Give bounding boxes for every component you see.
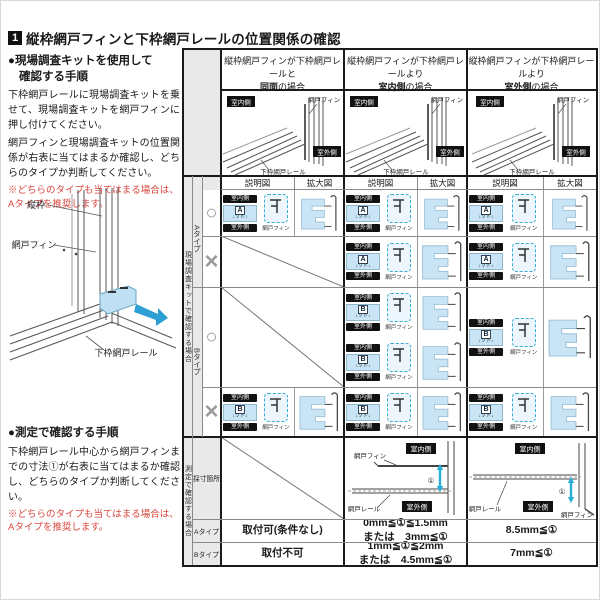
diagram-cell: 室内側 B ↓ソト↓ 室外側 網戸フィン xyxy=(344,387,467,437)
setsumeizu-cell: 室内側 A ↓ソト↓ 室外側 網戸フィン xyxy=(467,190,544,236)
divider xyxy=(192,542,596,543)
outdoor-side-label: 室外側 xyxy=(223,423,257,431)
value-line: 7mm≦① xyxy=(510,547,553,561)
indoor-side-label: 室内側 xyxy=(469,195,503,203)
fin-glyph xyxy=(267,196,285,216)
fin-glyph xyxy=(390,196,408,216)
indoor-side-label: 室内側 xyxy=(480,98,500,107)
rail-label: 網戸レール xyxy=(348,504,381,513)
subheader-setsumeizu: 説明図 xyxy=(467,176,544,190)
fin-label: 網戸フィン xyxy=(308,95,340,104)
measure-heading: ●測定で確認する手順 xyxy=(8,426,180,442)
fin-highlight-box xyxy=(512,194,536,223)
diagram-cell: 室内側 A ↓ソト↓ 室外側 網戸フィン xyxy=(344,236,467,287)
measure-note: ※どちらのタイプも当てはまる場合は、Aタイプを推奨します。 xyxy=(8,508,180,536)
kit-ticks: ↓ソト↓ xyxy=(478,339,493,344)
measure-row-label: 採寸箇所 xyxy=(192,437,221,519)
dimension-1-label: ① xyxy=(559,487,566,496)
kit-ticks: ↓ソト↓ xyxy=(478,215,493,220)
fin-label: 網戸フィン xyxy=(561,510,593,519)
diagram-pair: 室内側 B ↓ソト↓ 室外側 網戸フィン xyxy=(467,387,596,437)
outdoor-side-label: 室外側 xyxy=(317,148,337,157)
divider xyxy=(192,519,596,520)
divider xyxy=(202,236,596,237)
enlarged-kit-shape xyxy=(547,389,593,435)
fin-label: 網戸フィン xyxy=(262,423,289,431)
fin-highlight-box xyxy=(387,343,411,372)
outdoor-side-label: 室外側 xyxy=(346,323,380,331)
divider xyxy=(192,176,193,565)
value-b-indoor: 1mm≦①≦2mm または 4.5mm≦① xyxy=(344,542,467,565)
col-header-text: 縦枠網戸フィンが下枠網戸レールより xyxy=(469,56,595,79)
fin-label: 網戸フィン xyxy=(510,273,537,281)
fin-label: 網戸フィン xyxy=(385,273,412,281)
measure-section: ●測定で確認する手順 下枠網戸レール中心から網戸フィンまでの寸法①が右表に当ては… xyxy=(8,426,180,545)
indoor-side-label: 室内側 xyxy=(411,445,432,454)
survey-kit-bar: B ↓ソト↓ xyxy=(346,404,380,421)
fin-label: 網戸フィン xyxy=(385,373,412,381)
outdoor-side-label: 室外側 xyxy=(469,423,503,431)
value-a-indoor: 0mm≦①≦1.5mm または 3mm≦① xyxy=(344,519,467,542)
outdoor-side-label: 室外側 xyxy=(440,148,460,157)
diagram-cell: 室内側 B ↓ソト↓ 室外側 網戸フィン xyxy=(467,387,596,437)
col-header-indoor: 縦枠網戸フィンが下枠網戸レールより 室内側の場合 xyxy=(344,50,467,90)
survey-kit-bar: B ↓ソト↓ xyxy=(469,329,503,346)
indoor-side-label: 室内側 xyxy=(346,294,380,302)
value-line: または 4.5mm≦① xyxy=(359,554,452,568)
enlarged-kit-shape xyxy=(420,339,464,385)
survey-kit-bar: B ↓ソト↓ xyxy=(469,404,503,421)
fin-label: 網戸フィン xyxy=(510,224,537,232)
survey-kit-shape xyxy=(100,286,136,314)
corner-cell xyxy=(184,50,221,176)
divider xyxy=(221,189,596,190)
divider xyxy=(192,287,596,288)
outdoor-side-label: 室外側 xyxy=(566,148,586,157)
survey-kit-bar: B ↓ソト↓ xyxy=(346,304,380,321)
col-header-text: 縦枠網戸フィンが下枠網戸レールより xyxy=(347,56,464,79)
measure-diagram-na xyxy=(221,437,344,519)
diagram-cell: 室内側 B ↓ソト↓ 室外側 網戸フィン xyxy=(467,287,596,387)
diagram-pair: 室内側 A ↓ソト↓ 室外側 網戸フィン xyxy=(221,190,344,236)
kakudaizu-cell xyxy=(418,387,467,437)
diagram-cell: 室内側 B ↓ソト↓ 室外側 網戸フィン xyxy=(221,387,344,437)
indoor-side-label: 室内側 xyxy=(346,344,380,352)
enlarged-kit-shape xyxy=(547,238,593,285)
rail-label: 網戸レール xyxy=(469,504,502,513)
setsumeizu-cell: 室内側 A ↓ソト↓ 室外側 網戸フィン xyxy=(344,236,418,287)
value-a-same-plane: 取付可(条件なし) xyxy=(221,519,344,542)
overview-diagram-indoor: 室内側 網戸フィン 室外側 下枠網戸レール xyxy=(344,90,467,176)
kit-ticks: ↓ソト↓ xyxy=(232,414,247,419)
indoor-side-label: 室内側 xyxy=(469,319,503,327)
fin-glyph xyxy=(390,395,408,415)
subheader-kakudaizu: 拡大図 xyxy=(418,176,467,190)
setsumeizu-cell: 室内側 B ↓ソト↓ 室外側 網戸フィン xyxy=(467,287,544,387)
fin-glyph xyxy=(390,295,408,315)
diagram-cell: 室内側 A ↓ソト↓ 室外側 網戸フィン xyxy=(467,190,596,236)
overview-diagram-outdoor: 室内側 網戸フィン 室外側 下枠網戸レール xyxy=(467,90,596,176)
indoor-side-label: 室内側 xyxy=(223,195,257,203)
not-applicable-cell xyxy=(221,287,344,387)
kakudaizu-cell xyxy=(544,190,596,236)
fin-highlight-box xyxy=(264,194,288,223)
col-header-text: 縦枠網戸フィンが下枠網戸レールと xyxy=(224,56,341,79)
kit-procedure-heading-line2: 確認する手順 xyxy=(8,70,180,86)
subheader-kakudaizu: 拡大図 xyxy=(295,176,344,190)
enlarged-kit-shape xyxy=(420,389,464,435)
enlarged-kit-shape xyxy=(297,192,341,234)
indoor-side-label: 室内側 xyxy=(346,243,380,251)
value-b-same-plane: 取付不可 xyxy=(221,542,344,565)
divider xyxy=(466,50,468,565)
setsumeizu-cell: 室内側 B ↓ソト↓ 室外側 網戸フィン xyxy=(344,387,418,437)
indoor-side-label: 室内側 xyxy=(354,98,374,107)
col-header-outdoor: 縦枠網戸フィンが下枠網戸レールより 室外側の場合 xyxy=(467,50,596,90)
value-b-outdoor: 7mm≦① xyxy=(467,542,596,565)
fin-highlight-box xyxy=(387,194,411,223)
outdoor-side-label: 室外側 xyxy=(407,503,428,512)
diagram-pair: 室内側 B ↓ソト↓ 室外側 網戸フィン xyxy=(467,287,596,387)
indoor-side-label: 室内側 xyxy=(469,243,503,251)
kakudaizu-cell xyxy=(418,190,467,236)
diagram-cell: 室内側 A ↓ソト↓ 室外側 網戸フィン xyxy=(221,190,344,236)
kakudaizu-cell xyxy=(295,387,344,437)
kit-procedure-para1: 下枠網戸レールに現場調査キットを乗せて、現場調査キットを網戸フィンに押し付けてく… xyxy=(8,88,180,133)
not-applicable-cell xyxy=(221,236,344,287)
outdoor-side-label: 室外側 xyxy=(346,373,380,381)
section-header: 1 縦枠網戸フィンと下枠網戸レールの位置関係の確認 xyxy=(8,28,341,48)
enlarged-kit-shape xyxy=(420,238,464,285)
indoor-side-label: 室内側 xyxy=(231,98,251,107)
kit-procedure-heading-line1: ●現場調査キットを使用して xyxy=(8,54,180,70)
diagram-pair: 室内側 A ↓ソト↓ 室外側 網戸フィン xyxy=(344,190,467,236)
divider xyxy=(220,50,222,565)
outdoor-side-label: 室外側 xyxy=(223,224,257,232)
fin-glyph xyxy=(267,395,285,415)
fin-label: 網戸フィン xyxy=(385,224,412,232)
measure-type-b-label: Bタイプ xyxy=(192,542,221,565)
fin-highlight-box xyxy=(264,393,288,422)
fin-label: 網戸フィン xyxy=(510,348,537,356)
kit-ticks: ↓ソト↓ xyxy=(232,215,247,220)
subheader-kakudaizu: 拡大図 xyxy=(544,176,596,190)
kit-check-group-label: 現場調査キットで確認する場合 xyxy=(184,176,192,437)
value-line: 取付不可 xyxy=(262,547,304,561)
setsumeizu-cell: 室内側 B ↓ソト↓ 室外側 網戸フィン xyxy=(221,387,295,437)
fin-label: 網戸フィン xyxy=(354,451,386,460)
survey-kit-bar: B ↓ソト↓ xyxy=(223,404,257,421)
indoor-side-label: 室内側 xyxy=(346,195,380,203)
kit-ticks: ↓ソト↓ xyxy=(355,215,370,220)
diagram-pair: 室内側 A ↓ソト↓ 室外側 網戸フィン xyxy=(467,236,596,287)
corner-overview-svg: 室内側 網戸フィン 室外側 下枠網戸レール xyxy=(467,90,596,176)
corner-overview-svg: 室内側 網戸フィン 室外側 下枠網戸レール xyxy=(344,90,467,176)
enlarged-kit-shape xyxy=(547,192,593,234)
setsumeizu-cell: 室内側 B ↓ソト↓ 室外側 網戸フィン xyxy=(344,287,418,337)
survey-kit-bar: A ↓ソト↓ xyxy=(346,205,380,222)
divider xyxy=(202,387,596,388)
fin-label: 網戸フィン xyxy=(385,423,412,431)
kit-procedure-para2: 網戸フィンと現場調査キットの位置関係が右表に当てはまるか確認し、どちらのタイプか… xyxy=(8,136,180,181)
window-frame-diagram: 縦枠 網戸フィン 下枠網戸レール xyxy=(8,186,180,368)
kakudaizu-cell xyxy=(544,287,596,387)
fin-glyph xyxy=(515,395,533,415)
push-direction-arrow xyxy=(134,304,168,326)
kakudaizu-cell xyxy=(544,387,596,437)
fin-label: 網戸フィン xyxy=(431,95,463,104)
measure-diagram-indoor: 室内側 室外側 網戸フィン 網戸レール ① xyxy=(344,437,467,519)
fin-glyph xyxy=(390,345,408,365)
subheader-setsumeizu: 説明図 xyxy=(221,176,295,190)
kit-ticks: ↓ソト↓ xyxy=(355,314,370,319)
corner-overview-svg: 室内側 網戸フィン 室外側 下枠網戸レール xyxy=(221,90,344,176)
fin-highlight-box xyxy=(387,243,411,272)
type-b-label: Bタイプ xyxy=(192,287,202,437)
kakudaizu-cell xyxy=(295,190,344,236)
fin-glyph xyxy=(515,196,533,216)
enlarged-kit-shape xyxy=(547,291,593,383)
diagram-pair: 室内側 A ↓ソト↓ 室外側 網戸フィン xyxy=(344,236,467,287)
survey-kit-bar: A ↓ソト↓ xyxy=(223,205,257,222)
match-mark-a-ng: × xyxy=(202,236,221,287)
outdoor-side-label: 室外側 xyxy=(528,503,549,512)
fin-label: 網戸フィン xyxy=(385,323,412,331)
fin-glyph xyxy=(390,245,408,265)
measure-type-a-label: Aタイプ xyxy=(192,519,221,542)
fin-glyph xyxy=(515,245,533,265)
match-mark-a-ok: ○ xyxy=(202,190,221,236)
overview-diagram-same-plane: 室内側 網戸フィン 室外側 下枠網戸レール xyxy=(221,90,344,176)
setsumeizu-cell: 室内側 A ↓ソト↓ 室外側 網戸フィン xyxy=(467,236,544,287)
left-instructions-panel: ●現場調査キットを使用して 確認する手順 下枠網戸レールに現場調査キットを乗せて… xyxy=(8,54,180,221)
setsumeizu-cell: 室内側 A ↓ソト↓ 室外側 網戸フィン xyxy=(344,190,418,236)
subheader-setsumeizu: 説明図 xyxy=(344,176,418,190)
outdoor-side-label: 室外側 xyxy=(469,224,503,232)
indoor-side-label: 室内側 xyxy=(520,445,541,454)
fin-highlight-box xyxy=(387,393,411,422)
fin-highlight-box xyxy=(512,243,536,272)
kit-ticks: ↓ソト↓ xyxy=(355,364,370,369)
setsumeizu-cell: 室内側 A ↓ソト↓ 室外側 網戸フィン xyxy=(221,190,295,236)
enlarged-kit-shape xyxy=(420,289,464,335)
divider xyxy=(220,89,596,91)
divider xyxy=(343,50,345,565)
kakudaizu-cell xyxy=(544,236,596,287)
enlarged-kit-shape xyxy=(420,192,464,234)
outdoor-side-label: 室外側 xyxy=(346,423,380,431)
fin-highlight-box xyxy=(512,393,536,422)
fin-highlight-box xyxy=(512,318,536,347)
indoor-side-label: 室内側 xyxy=(223,394,257,402)
survey-kit-bar: A ↓ソト↓ xyxy=(346,253,380,270)
enlarged-kit-shape xyxy=(297,389,341,435)
survey-kit-bar: A ↓ソト↓ xyxy=(469,205,503,222)
diagram-pair: 室内側 B ↓ソト↓ 室外側 網戸フィン xyxy=(221,387,344,437)
fin-label: 網戸フィン xyxy=(510,423,537,431)
position-check-table: 縦枠網戸フィンが下枠網戸レールと 同面の場合 縦枠網戸フィンが下枠網戸レールより… xyxy=(182,48,598,567)
outdoor-side-label: 室外側 xyxy=(346,224,380,232)
divider xyxy=(184,436,596,438)
diagram-pair: 室内側 B ↓ソト↓ 室外側 網戸フィン xyxy=(344,387,467,437)
outdoor-side-label: 室外側 xyxy=(469,272,503,280)
measure-group-label: 測定で確認する場合 xyxy=(184,437,192,565)
match-mark-b-ng: × xyxy=(202,387,221,437)
kakudaizu-cell xyxy=(418,236,467,287)
document-page: 1 縦枠網戸フィンと下枠網戸レールの位置関係の確認 ●現場調査キットを使用して … xyxy=(0,0,600,600)
diagram-cell: 室内側 A ↓ソト↓ 室外側 網戸フィン xyxy=(467,236,596,287)
diagram-pair: 室内側 B ↓ソト↓ 室外側 網戸フィン xyxy=(344,337,467,387)
divider xyxy=(184,175,596,177)
survey-kit-bar: B ↓ソト↓ xyxy=(346,354,380,371)
kit-ticks: ↓ソト↓ xyxy=(355,264,370,269)
label-filler xyxy=(192,176,221,190)
fin-glyph xyxy=(515,320,533,340)
measure-para: 下枠網戸レール中心から網戸フィンまでの寸法①が右表に当てはまるか確認し、どちらの… xyxy=(8,445,180,505)
setsumeizu-cell: 室内側 B ↓ソト↓ 室外側 網戸フィン xyxy=(344,337,418,387)
diagram-pair: 室内側 B ↓ソト↓ 室外側 網戸フィン xyxy=(344,287,467,337)
tatewaku-label: 縦枠 xyxy=(27,199,45,210)
section-number-badge: 1 xyxy=(8,31,22,45)
kit-ticks: ↓ソト↓ xyxy=(478,264,493,269)
measure-diagram-outdoor: 室内側 室外側 網戸レール 網戸フィン ① xyxy=(467,437,596,519)
fin-label: 網戸フィン xyxy=(12,239,57,250)
rail-label: 下枠網戸レール xyxy=(94,347,157,358)
outdoor-side-label: 室外側 xyxy=(346,272,380,280)
kit-ticks: ↓ソト↓ xyxy=(355,414,370,419)
value-line: 取付可(条件なし) xyxy=(242,524,323,538)
kakudaizu-cell xyxy=(418,337,467,387)
value-line: 8.5mm≦① xyxy=(506,524,557,538)
diagram-pair: 室内側 A ↓ソト↓ 室外側 網戸フィン xyxy=(467,190,596,236)
diagram-cell: 室内側 A ↓ソト↓ 室外側 網戸フィン xyxy=(344,190,467,236)
indoor-side-label: 室内側 xyxy=(469,394,503,402)
outdoor-side-label: 室外側 xyxy=(469,348,503,356)
page-title: 縦枠網戸フィンと下枠網戸レールの位置関係の確認 xyxy=(26,28,341,48)
dimension-1-label: ① xyxy=(428,476,435,485)
setsumeizu-cell: 室内側 B ↓ソト↓ 室外側 網戸フィン xyxy=(467,387,544,437)
indoor-side-label: 室内側 xyxy=(346,394,380,402)
diagram-cell-double: 室内側 B ↓ソト↓ 室外側 網戸フィン 室内側 B ↓ソ xyxy=(344,287,467,387)
value-a-outdoor: 8.5mm≦① xyxy=(467,519,596,542)
col-header-same-plane: 縦枠網戸フィンが下枠網戸レールと 同面の場合 xyxy=(221,50,344,90)
fin-highlight-box xyxy=(387,293,411,322)
kakudaizu-cell xyxy=(418,287,467,337)
kit-ticks: ↓ソト↓ xyxy=(478,414,493,419)
type-a-label: Aタイプ xyxy=(192,190,202,287)
survey-kit-bar: A ↓ソト↓ xyxy=(469,253,503,270)
fin-label: 網戸フィン xyxy=(557,95,589,104)
fin-label: 網戸フィン xyxy=(262,224,289,232)
divider xyxy=(202,176,203,437)
match-mark-b-ok: ○ xyxy=(202,287,221,387)
